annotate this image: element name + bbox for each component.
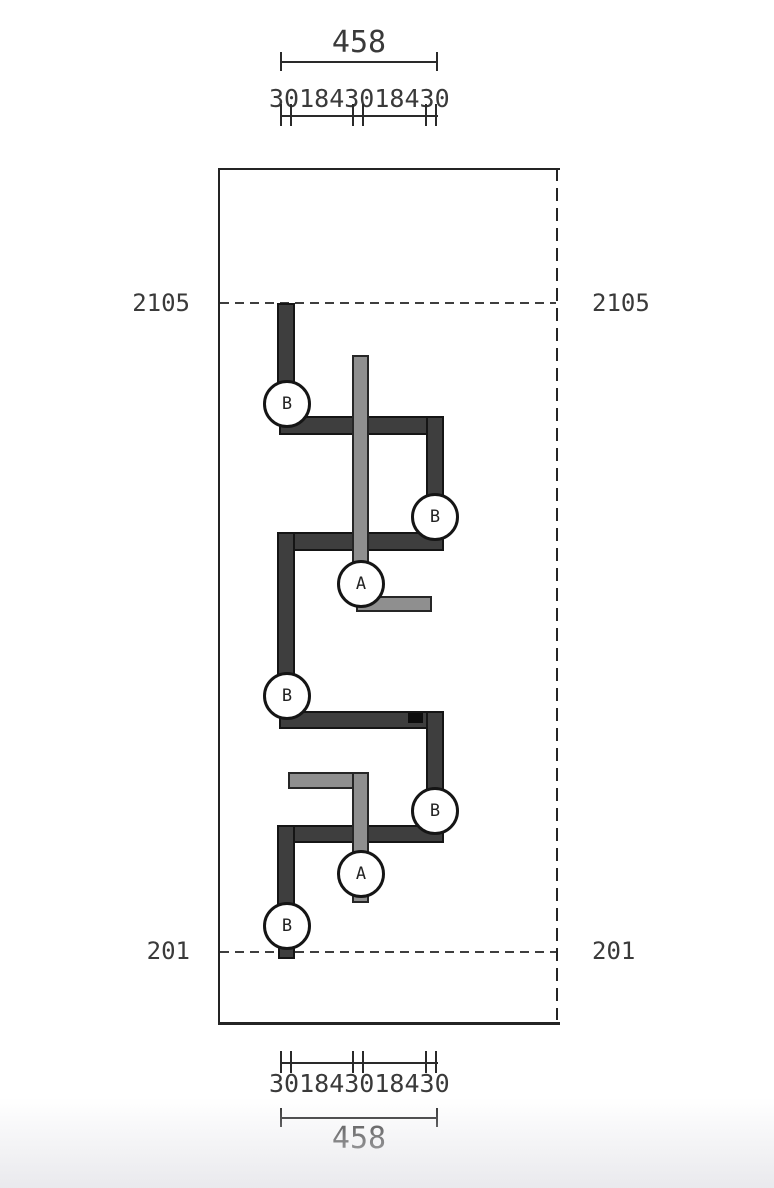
gray-bar-vertical-1 (352, 355, 369, 565)
callout-circle-b1: B (263, 380, 311, 428)
level-label-2105-left: 2105 (110, 290, 190, 316)
bottom-total-dimension-label: 458 (280, 1124, 438, 1154)
dim-tick (436, 52, 438, 71)
dark-bar-vertical-4 (426, 711, 444, 792)
callout-circle-a2: A (337, 850, 385, 898)
callout-letter: B (282, 394, 292, 414)
dim-tick (425, 104, 427, 126)
dim-tick (280, 52, 282, 71)
callout-circle-a1: A (337, 560, 385, 608)
top-total-dimension-label: 458 (280, 28, 438, 58)
callout-letter: A (356, 864, 366, 884)
callout-letter: A (356, 574, 366, 594)
bottom-segment-dimension-line (280, 1062, 438, 1064)
dim-tick (362, 104, 364, 126)
dim-tick (435, 104, 437, 126)
dim-tick (280, 104, 282, 126)
bottom-total-dimension-line (280, 1117, 438, 1119)
top-segment-dimension-line (280, 115, 438, 117)
level-line-201 (220, 951, 556, 953)
top-segment-dimension-label: 301843018430 (269, 86, 449, 111)
callout-circle-b3: B (263, 672, 311, 720)
dark-bar-vertical-2 (426, 416, 444, 498)
bottom-segment-dimension-label: 301843018430 (269, 1071, 449, 1096)
level-label-2105-right: 2105 (592, 290, 672, 316)
callout-letter: B (282, 916, 292, 936)
dark-bar-connector-patch (408, 713, 423, 723)
callout-letter: B (282, 686, 292, 706)
callout-letter: B (430, 801, 440, 821)
dark-bar-vertical-3 (277, 532, 295, 677)
level-label-201-left: 201 (110, 938, 190, 964)
dim-tick (290, 104, 292, 126)
dim-tick (352, 104, 354, 126)
callout-letter: B (430, 507, 440, 527)
dark-bar-vertical-1 (277, 303, 295, 387)
top-total-dimension-line (280, 61, 438, 63)
callout-circle-b5: B (263, 902, 311, 950)
callout-circle-b4: B (411, 787, 459, 835)
elevation-drawing-canvas: 458 301843018430 2105 2105 201 201 B B A (0, 0, 774, 1188)
gray-bar-horizontal-2 (288, 772, 359, 789)
callout-circle-b2: B (411, 493, 459, 541)
level-line-2105 (220, 302, 556, 304)
panel-outline-right-dashed-edge (556, 168, 558, 1020)
dark-bar-vertical-5 (277, 825, 295, 907)
level-label-201-right: 201 (592, 938, 672, 964)
